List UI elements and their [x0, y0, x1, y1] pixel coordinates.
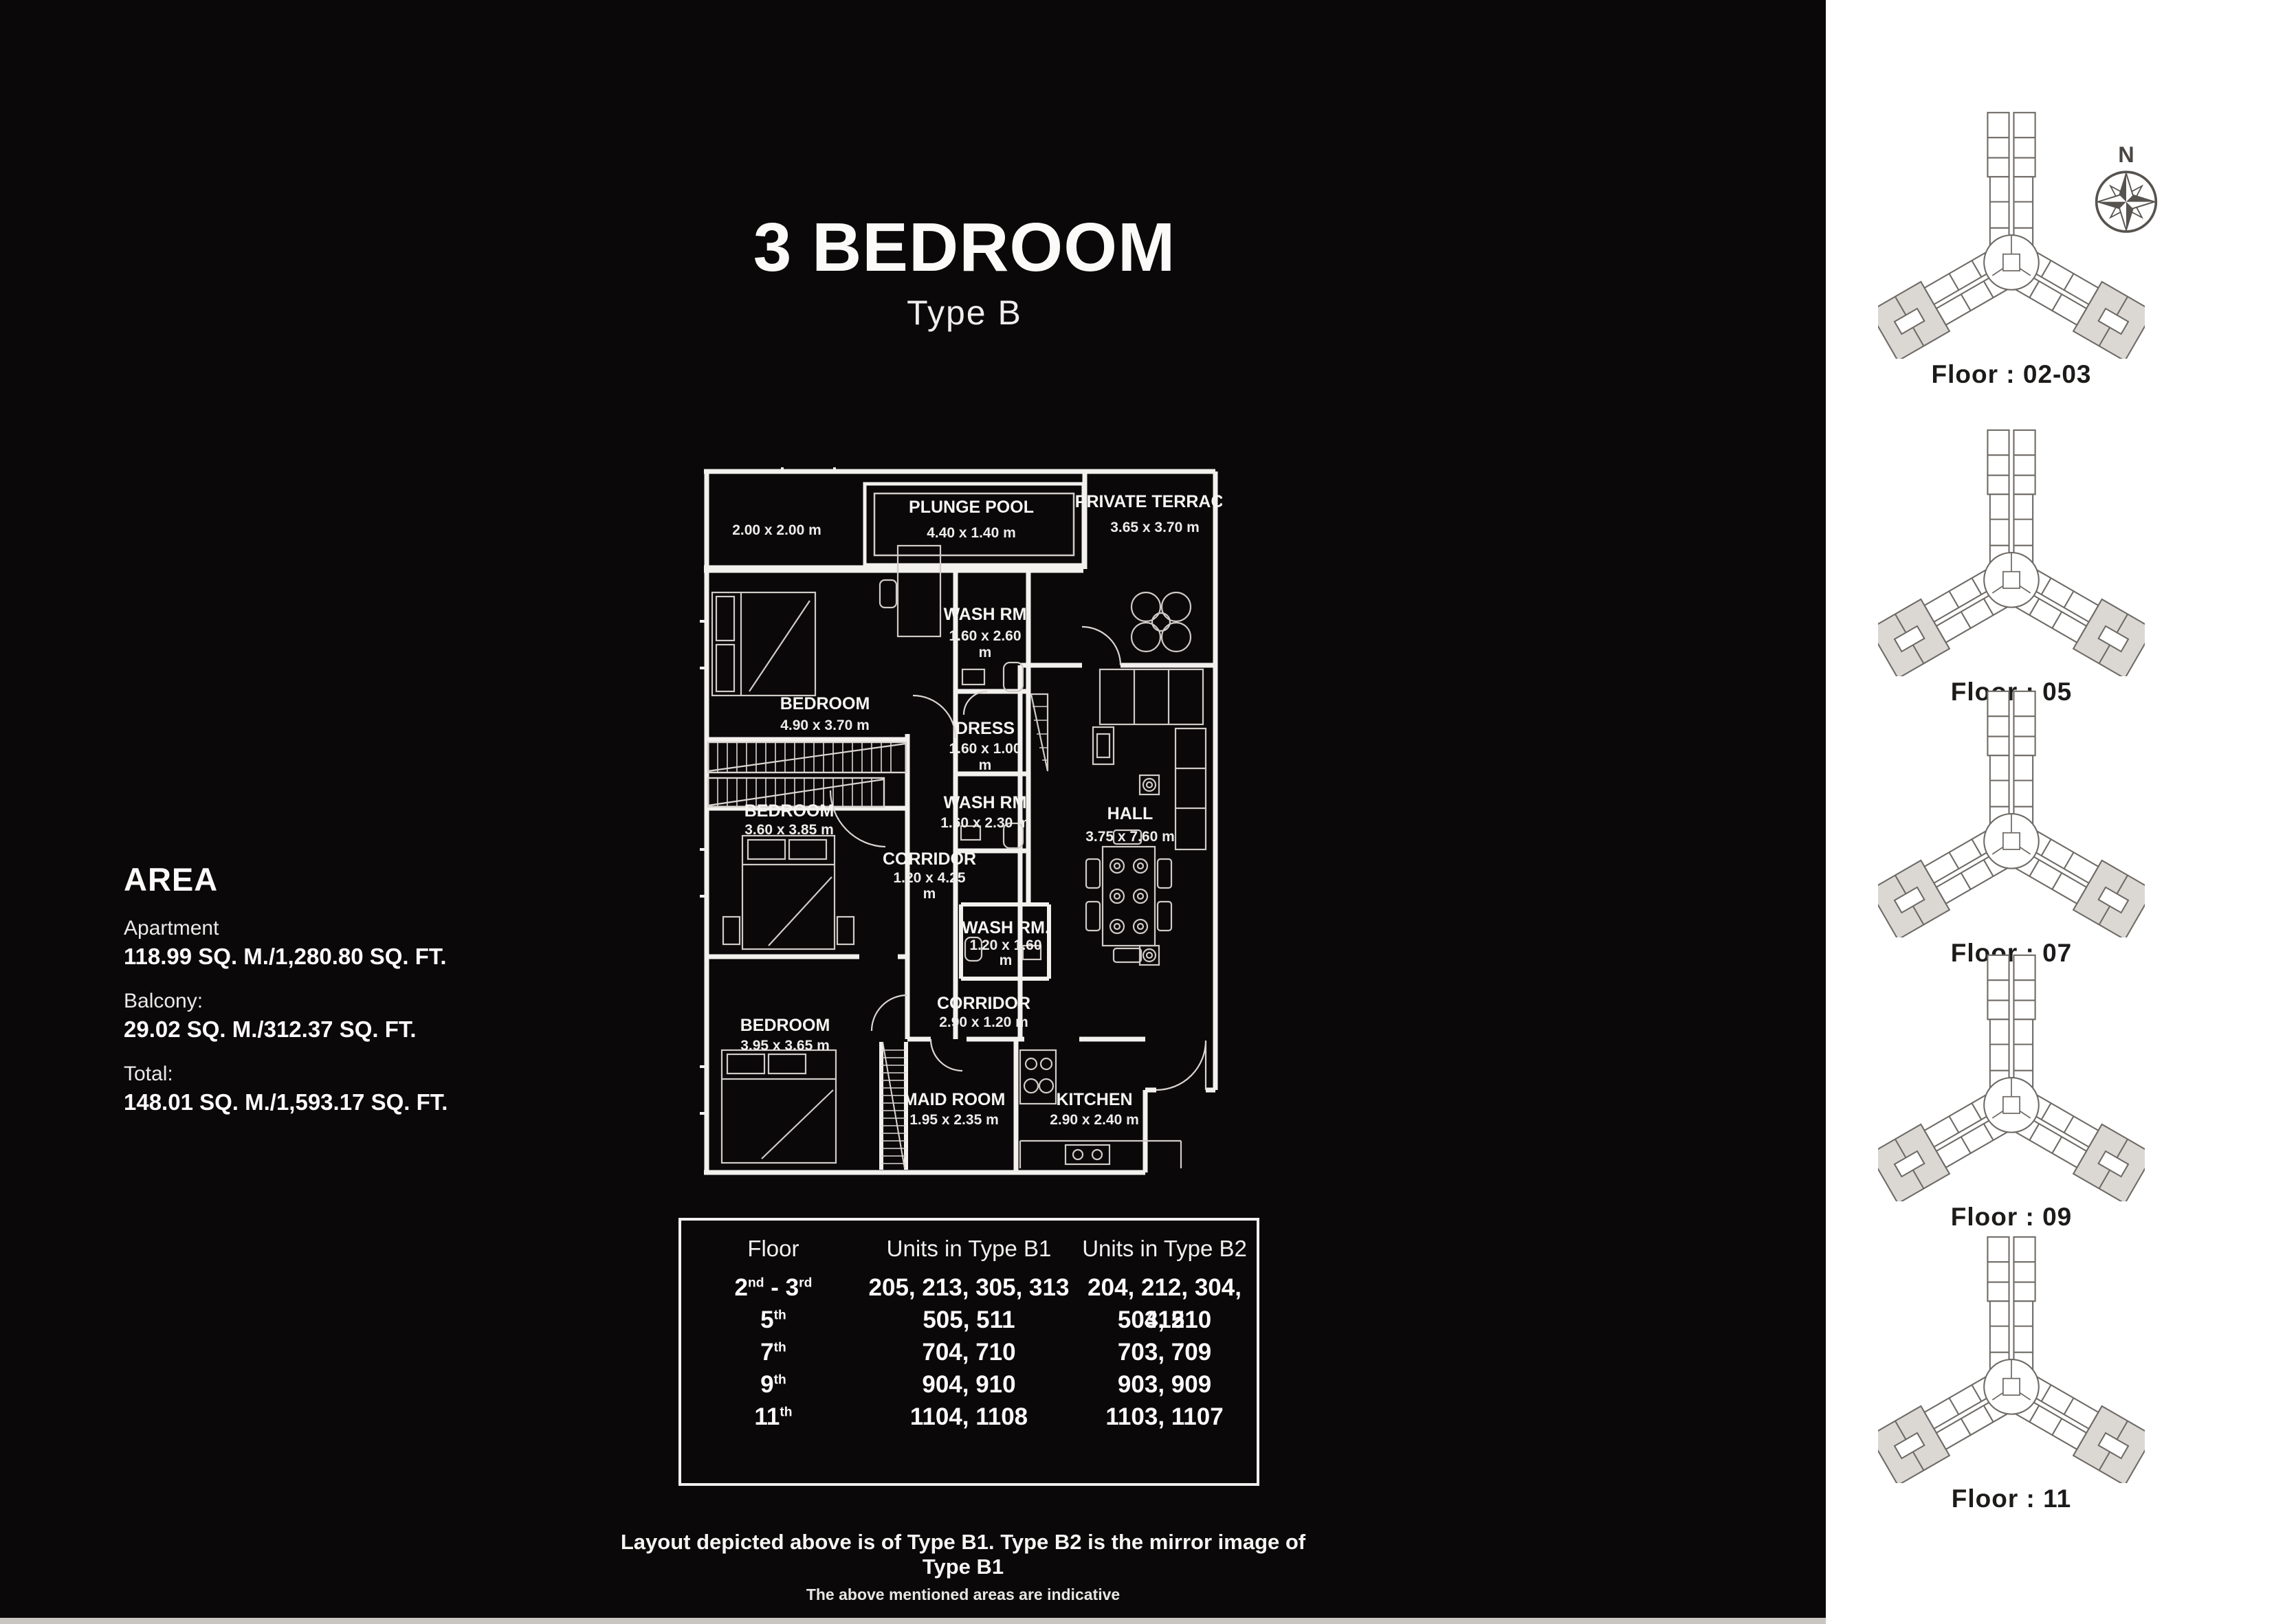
area-item-balcony: Balcony: 29.02 SQ. M./312.37 SQ. FT.	[124, 988, 564, 1044]
room-dims: 2.00 x 2.00 m	[732, 522, 821, 538]
area-label: Apartment	[124, 915, 564, 942]
room-labels: PLUNGE POOL 4.40 x 1.40 m PRIVATE TERRAC…	[732, 492, 1222, 1128]
units-b2-cell: 703, 709	[1072, 1336, 1257, 1368]
area-label: Total:	[124, 1060, 564, 1088]
room-dims: 1.20 x 1.60	[969, 937, 1041, 953]
room-label: CORRIDOR	[937, 994, 1030, 1013]
room-label: BEDROOM	[740, 1016, 830, 1035]
room-dims: 2.90 x 1.20 m	[939, 1014, 1028, 1030]
units-b1-cell: 205, 213, 305, 313	[865, 1271, 1072, 1304]
units-table-row: 2nd - 3rd205, 213, 305, 313204, 212, 304…	[681, 1271, 1257, 1304]
building-key-plan	[1878, 421, 2145, 676]
room-label: DRESS	[956, 719, 1015, 738]
room-dims: m	[979, 645, 992, 660]
room-dims: m	[1000, 953, 1013, 968]
floor-diagram-2: Floor : 05	[1868, 421, 2154, 707]
floor-cell: 9th	[681, 1368, 865, 1401]
note-line2: The above mentioned areas are indicative	[619, 1586, 1307, 1604]
room-dims: 3.95 x 3.65 m	[740, 1038, 830, 1054]
room-dims: 2.90 x 2.40 m	[1050, 1112, 1139, 1128]
units-table-row: 11th1104, 11081103, 1107	[681, 1401, 1257, 1433]
units-b2-cell: 903, 909	[1072, 1368, 1257, 1401]
room-dims: 3.60 x 3.85 m	[744, 822, 834, 838]
room-label: MAID ROOM	[903, 1090, 1006, 1109]
room-label: PLUNGE POOL	[909, 498, 1034, 517]
floor-diagram-4: Floor : 09	[1868, 946, 2154, 1232]
page-subtitle: Type B	[662, 293, 1267, 333]
floor-plan: PLUNGE POOL 4.40 x 1.40 m PRIVATE TERRAC…	[700, 465, 1222, 1179]
stairs-hatch-maid	[881, 1042, 906, 1168]
room-label: KITCHEN	[1056, 1090, 1132, 1109]
floor-cell: 7th	[681, 1336, 865, 1368]
floor-diagram-label: Floor : 02-03	[1868, 360, 2154, 389]
units-table-header: Floor Units in Type B1 Units in Type B2	[681, 1236, 1257, 1262]
units-b2-cell: 204, 212, 304, 312	[1072, 1271, 1257, 1304]
room-dims: 1.95 x 2.35 m	[909, 1112, 999, 1128]
floor-cell: 11th	[681, 1401, 865, 1433]
room-label: CORRIDOR	[883, 849, 976, 869]
units-b1-cell: 904, 910	[865, 1368, 1072, 1401]
room-label: WASH RM	[944, 605, 1027, 624]
room-dims: m	[923, 886, 936, 902]
units-table-row: 5th505, 511504, 510	[681, 1304, 1257, 1336]
room-label: PRIVATE TERRACE	[1075, 492, 1222, 511]
units-table-body: 2nd - 3rd205, 213, 305, 313204, 212, 304…	[681, 1271, 1257, 1433]
units-table-row: 9th904, 910903, 909	[681, 1368, 1257, 1401]
area-label: Balcony:	[124, 988, 564, 1015]
area-item-total: Total: 148.01 SQ. M./1,593.17 SQ. FT.	[124, 1060, 564, 1117]
room-dims: m	[979, 757, 992, 773]
floor-cell: 2nd - 3rd	[681, 1271, 865, 1304]
title-block: 3 BEDROOM Type B	[662, 213, 1267, 333]
room-dims: 3.65 x 3.70 m	[1110, 520, 1200, 535]
building-key-plan	[1878, 682, 2145, 937]
building-key-plan	[1878, 103, 2145, 359]
area-panel: AREA Apartment 118.99 SQ. M./1,280.80 SQ…	[124, 860, 564, 1117]
area-item-apartment: Apartment 118.99 SQ. M./1,280.80 SQ. FT.	[124, 915, 564, 971]
stairs-hatch-upper	[708, 742, 906, 807]
room-label: WASH RM.	[962, 918, 1050, 937]
area-value: 118.99 SQ. M./1,280.80 SQ. FT.	[124, 942, 564, 971]
room-dims: 1.60 x 1.00	[949, 741, 1021, 757]
area-heading: AREA	[124, 860, 564, 898]
area-value: 148.01 SQ. M./1,593.17 SQ. FT.	[124, 1088, 564, 1117]
room-label: BEDROOM	[744, 801, 835, 821]
room-label: WASH RM	[944, 793, 1027, 812]
room-dims: 1.60 x 2.60	[949, 628, 1021, 644]
room-label: BEDROOM	[780, 694, 870, 713]
note-block: Layout depicted above is of Type B1. Typ…	[619, 1530, 1307, 1604]
note-line1: Layout depicted above is of Type B1. Typ…	[619, 1530, 1307, 1579]
area-value: 29.02 SQ. M./312.37 SQ. FT.	[124, 1015, 564, 1044]
room-dims: 1.20 x 4.25	[893, 870, 965, 886]
key-plan-sidebar: N Floor : 02-03Floor : 05Floor : 07Floor…	[1826, 0, 2274, 1624]
bottom-strip	[0, 1618, 1826, 1624]
col-header-b1: Units in Type B1	[865, 1236, 1072, 1262]
room-dims: 4.90 x 3.70 m	[780, 718, 870, 733]
floor-diagram-1: Floor : 02-03	[1868, 103, 2154, 389]
floor-cell: 5th	[681, 1304, 865, 1336]
units-table-row: 7th704, 710703, 709	[681, 1336, 1257, 1368]
room-dims: 4.40 x 1.40 m	[927, 525, 1016, 541]
col-header-b2: Units in Type B2	[1072, 1236, 1257, 1262]
units-table: Floor Units in Type B1 Units in Type B2 …	[678, 1218, 1259, 1486]
room-dims: 3.75 x 7.60 m	[1085, 829, 1175, 845]
room-dims: 1.60 x 2.30 m	[940, 815, 1030, 831]
floor-diagram-label: Floor : 11	[1868, 1484, 2154, 1513]
building-key-plan	[1878, 1227, 2145, 1483]
units-b1-cell: 1104, 1108	[865, 1401, 1072, 1433]
floor-plan-drawing: PLUNGE POOL 4.40 x 1.40 m PRIVATE TERRAC…	[700, 465, 1222, 1179]
building-key-plan	[1878, 946, 2145, 1201]
brochure-page: 3 BEDROOM Type B AREA Apartment 118.99 S…	[0, 0, 2274, 1624]
units-b1-cell: 704, 710	[865, 1336, 1072, 1368]
units-b2-cell: 504, 510	[1072, 1304, 1257, 1336]
floor-diagram-5: Floor : 11	[1868, 1227, 2154, 1513]
page-title: 3 BEDROOM	[662, 213, 1267, 282]
room-label: HALL	[1107, 804, 1153, 823]
floor-diagram-3: Floor : 07	[1868, 682, 2154, 968]
units-b1-cell: 505, 511	[865, 1304, 1072, 1336]
col-header-floor: Floor	[681, 1236, 865, 1262]
units-b2-cell: 1103, 1107	[1072, 1401, 1257, 1433]
